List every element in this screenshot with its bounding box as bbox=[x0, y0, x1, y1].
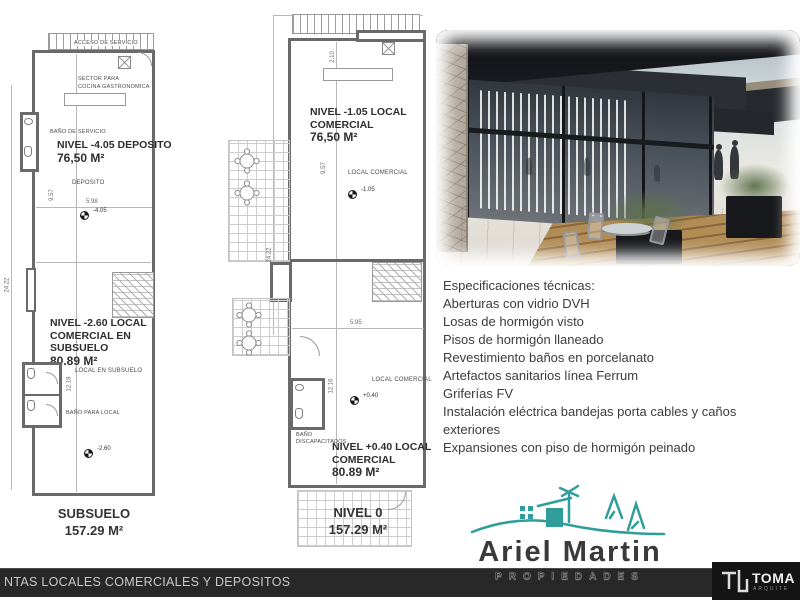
spec-item: Losas de hormigón visto bbox=[443, 313, 795, 331]
person-reflection bbox=[584, 158, 590, 176]
spec-item: Aberturas con vidrio DVH bbox=[443, 295, 795, 313]
person-reflection bbox=[526, 158, 532, 175]
dimension-w: 5.95 bbox=[348, 320, 364, 326]
spec-item: Revestimiento baños en porcelanato bbox=[443, 349, 795, 367]
deck-table bbox=[602, 223, 652, 234]
architect-name: TOMA bbox=[752, 570, 795, 586]
nivel105-line1: NIVEL -1.05 LOCAL bbox=[310, 106, 407, 119]
level-label: -1.05 bbox=[361, 187, 375, 193]
plan-caption-nivel0: NIVEL 0 157.29 M² bbox=[303, 504, 413, 538]
planter-box bbox=[616, 230, 682, 264]
nivel040-title: NIVEL +0.40 LOCAL COMERCIAL 80.89 M² bbox=[332, 441, 431, 479]
footer-title: NTAS LOCALES COMERCIALES Y DEPOSITOS bbox=[4, 575, 290, 589]
toilet-icon bbox=[295, 408, 303, 419]
dimension-line bbox=[292, 328, 424, 329]
nivel040-line1: NIVEL +0.40 LOCAL bbox=[332, 441, 431, 454]
dimension-v2: 12.16 bbox=[329, 378, 335, 393]
nivel105-line3: 76,50 M² bbox=[310, 131, 407, 144]
spec-item: Expansiones con piso de hormigón peinado bbox=[443, 439, 795, 457]
dimension-v1: 9.57 bbox=[321, 162, 327, 174]
local-comercial-label2: LOCAL COMERCIAL bbox=[372, 377, 432, 383]
presentation-slide: 24.22 ACCESO DE SERVICIO SECTOR PARA COC… bbox=[0, 0, 800, 600]
table-icon bbox=[234, 148, 260, 179]
wall-jog bbox=[270, 262, 292, 302]
dimension-total: 24.22 bbox=[267, 247, 273, 262]
spec-item: Griferías FV bbox=[443, 385, 795, 403]
wall-step bbox=[356, 30, 426, 42]
local-comercial-label: LOCAL COMERCIAL bbox=[348, 170, 408, 176]
interior-stairs bbox=[372, 262, 422, 302]
render-photo bbox=[436, 30, 800, 266]
counter bbox=[323, 68, 393, 81]
dimension-top: 2.10 bbox=[330, 51, 336, 63]
spec-item: Artefactos sanitarios línea Ferrum bbox=[443, 367, 795, 385]
planter-box bbox=[726, 196, 782, 238]
caption-name: NIVEL 0 bbox=[303, 504, 413, 521]
agency-name: Ariel Martin bbox=[452, 536, 688, 569]
hatch-box-icon bbox=[382, 42, 395, 55]
level-label: +0.40 bbox=[363, 393, 378, 399]
house-hill-icon bbox=[468, 478, 668, 540]
agency-tagline: PROPIEDADES bbox=[468, 571, 672, 582]
level-marker bbox=[350, 396, 359, 405]
architect-sub: ARQUITE bbox=[753, 586, 789, 592]
person-reflection bbox=[654, 164, 660, 181]
spec-item: Instalación eléctrica bandejas porta cab… bbox=[443, 403, 795, 439]
caption-area: 157.29 M² bbox=[303, 521, 413, 538]
architect-logo-box: TOMA ARQUITE bbox=[712, 562, 800, 600]
nivel040-line3: 80.89 M² bbox=[332, 466, 431, 479]
level-marker bbox=[348, 190, 357, 199]
table-icon bbox=[236, 302, 262, 333]
table-icon bbox=[236, 330, 262, 361]
table-icon bbox=[234, 180, 260, 211]
sink-icon bbox=[295, 384, 304, 391]
mullion bbox=[562, 86, 565, 224]
architect-logo-icon bbox=[720, 568, 750, 594]
specs-block: Especificaciones técnicas: Aberturas con… bbox=[443, 277, 795, 457]
bath-disc-label1: BAÑO bbox=[296, 432, 312, 438]
nivel105-title: NIVEL -1.05 LOCAL COMERCIAL 76,50 M² bbox=[310, 106, 407, 144]
spec-item: Pisos de hormigón llaneado bbox=[443, 331, 795, 349]
specs-title: Especificaciones técnicas: bbox=[443, 277, 795, 295]
